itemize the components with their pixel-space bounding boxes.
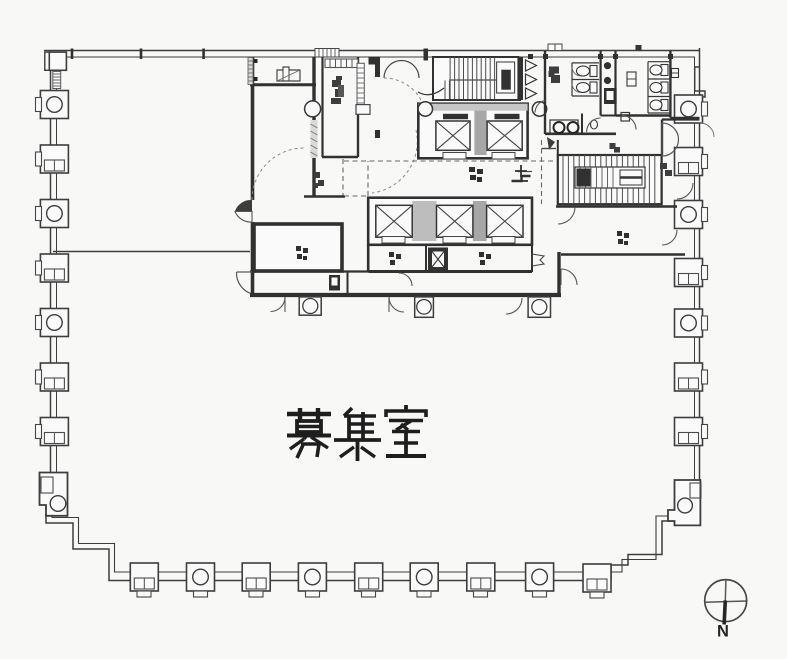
svg-text:N: N xyxy=(717,623,729,641)
